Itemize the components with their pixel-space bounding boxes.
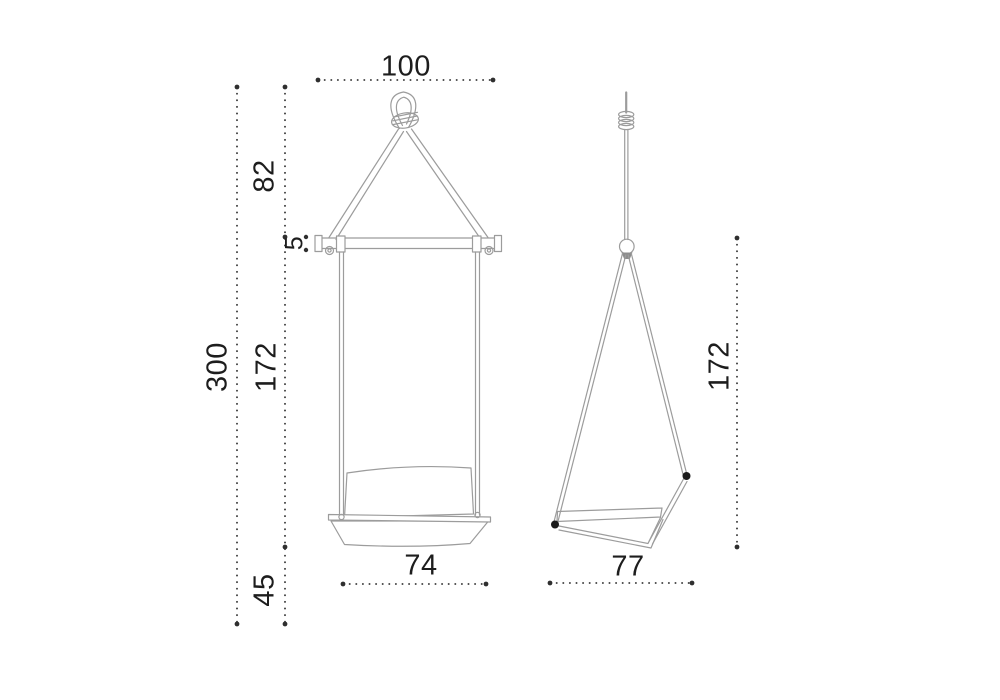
dim-label-seat-height: 45 xyxy=(251,573,280,606)
anchor-dot-front xyxy=(551,521,559,529)
bar-end-cap-right xyxy=(495,236,502,252)
strap-loop-right xyxy=(473,236,482,252)
dimension-end-dots xyxy=(235,78,740,627)
side-rope-knot xyxy=(619,111,634,129)
seat-slab-profile xyxy=(557,508,662,522)
front-view xyxy=(315,92,502,546)
side-rope-left xyxy=(554,254,626,525)
front-rope-right xyxy=(407,129,489,240)
backrest-panel xyxy=(345,467,474,518)
strap-right xyxy=(476,252,480,515)
seat-front-band xyxy=(329,515,491,523)
side-main-rope xyxy=(625,130,628,240)
side-view xyxy=(551,93,691,549)
bar-hook-right xyxy=(485,247,493,255)
dim-label-bar-thickness: 5 xyxy=(283,236,308,250)
seat-lip-profile xyxy=(557,518,664,549)
dimension-lines xyxy=(237,80,737,624)
dimension-drawing-page: 100 82 5 300 172 45 74 77 172 xyxy=(0,0,1000,700)
strap-left xyxy=(340,252,344,517)
anchor-dot-rear xyxy=(683,472,691,480)
rear-strut xyxy=(649,479,687,544)
strap-loop-left xyxy=(337,236,346,252)
dim-label-seat-width: 74 xyxy=(404,552,437,581)
dim-label-strap-drop: 172 xyxy=(253,342,282,392)
dim-label-seat-depth: 77 xyxy=(611,553,644,582)
side-rope-right xyxy=(628,254,687,478)
seat-pan xyxy=(331,521,489,546)
dim-label-hang-width: 100 xyxy=(381,53,431,82)
bar-hook-left xyxy=(326,247,334,255)
bar-end-cap-left xyxy=(315,236,322,252)
dim-label-total-height: 300 xyxy=(204,342,233,392)
swing-chair-drawing xyxy=(0,0,1000,700)
front-rope-left xyxy=(329,129,404,240)
rope-knot xyxy=(390,111,419,130)
dim-label-side-drop: 172 xyxy=(706,341,735,391)
suspension-ring xyxy=(620,239,635,254)
dim-label-rope-height: 82 xyxy=(251,159,280,192)
